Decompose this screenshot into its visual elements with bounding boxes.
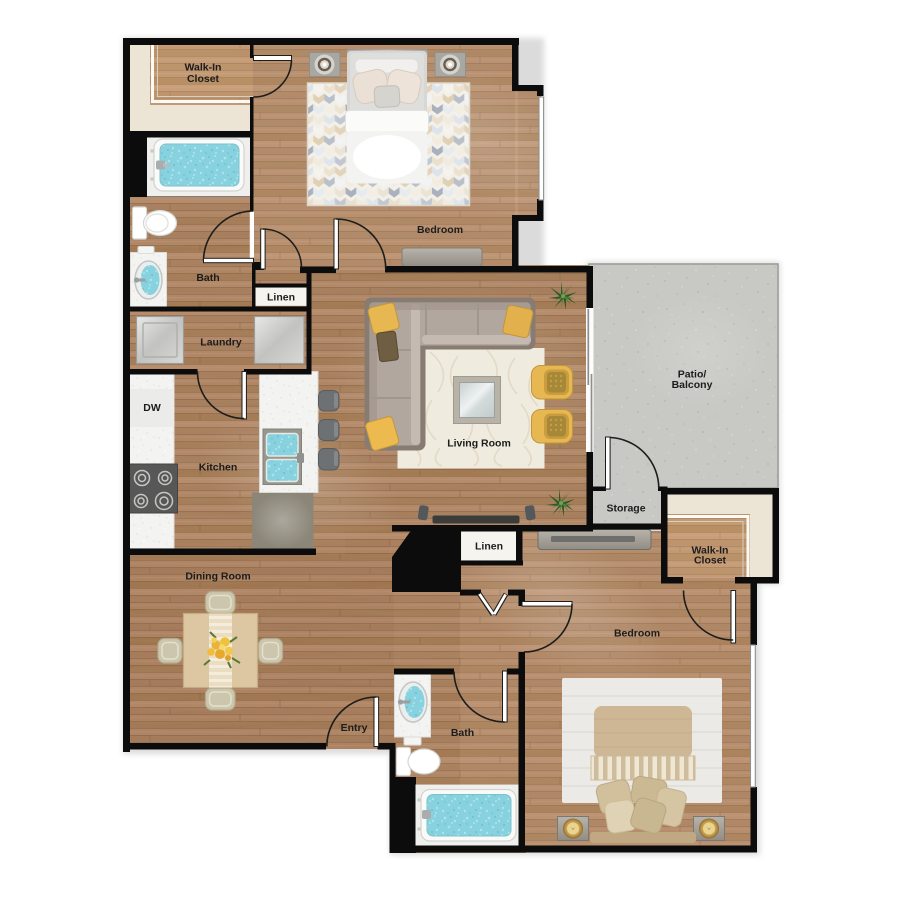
svg-text:Laundry: Laundry: [200, 337, 242, 349]
svg-text:DW: DW: [143, 402, 161, 414]
svg-text:Linen: Linen: [475, 541, 503, 553]
svg-text:Bath: Bath: [451, 727, 474, 739]
svg-text:Kitchen: Kitchen: [199, 462, 238, 474]
svg-text:Bath: Bath: [196, 272, 219, 284]
svg-text:Storage: Storage: [606, 503, 645, 515]
svg-text:Closet: Closet: [187, 73, 220, 85]
svg-text:Linen: Linen: [267, 292, 295, 304]
svg-text:Bedroom: Bedroom: [417, 224, 463, 236]
svg-text:Living Room: Living Room: [447, 438, 511, 450]
svg-text:Closet: Closet: [694, 555, 727, 567]
svg-text:Bedroom: Bedroom: [614, 628, 660, 640]
svg-text:Entry: Entry: [341, 722, 368, 734]
svg-text:Dining Room: Dining Room: [185, 571, 250, 583]
svg-text:Balcony: Balcony: [672, 379, 713, 391]
svg-text:Walk-In: Walk-In: [185, 62, 222, 74]
